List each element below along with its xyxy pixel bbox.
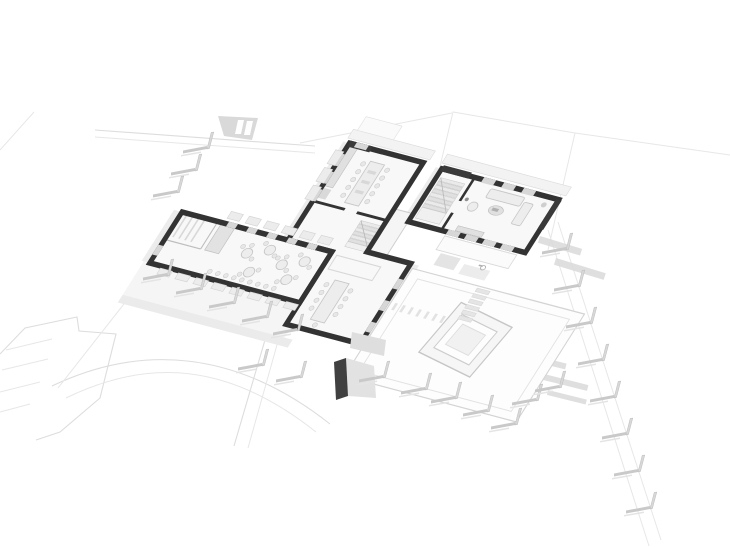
fence-post [169,154,202,179]
shed-dark-face [334,358,348,400]
path-ramp [218,116,258,140]
scene-canvas [0,0,730,548]
fence-post [151,176,184,201]
plot-line-right [575,133,730,155]
terrace-bar [547,390,587,405]
parking-lot [0,317,116,440]
upper-path-edge2 [95,137,315,153]
road-arc-outer [52,360,330,424]
stall-line [0,404,30,412]
under-structure [433,253,460,270]
boundary-line-topleft [0,112,34,150]
fence-post [236,349,269,374]
stall-line [0,382,40,392]
parking-outline [0,317,116,440]
upper-path-edge [95,130,315,146]
fence-post [274,361,307,386]
stall-line [2,359,48,370]
terrace-bar [554,258,606,280]
architectural-axonometric-render [0,0,730,548]
